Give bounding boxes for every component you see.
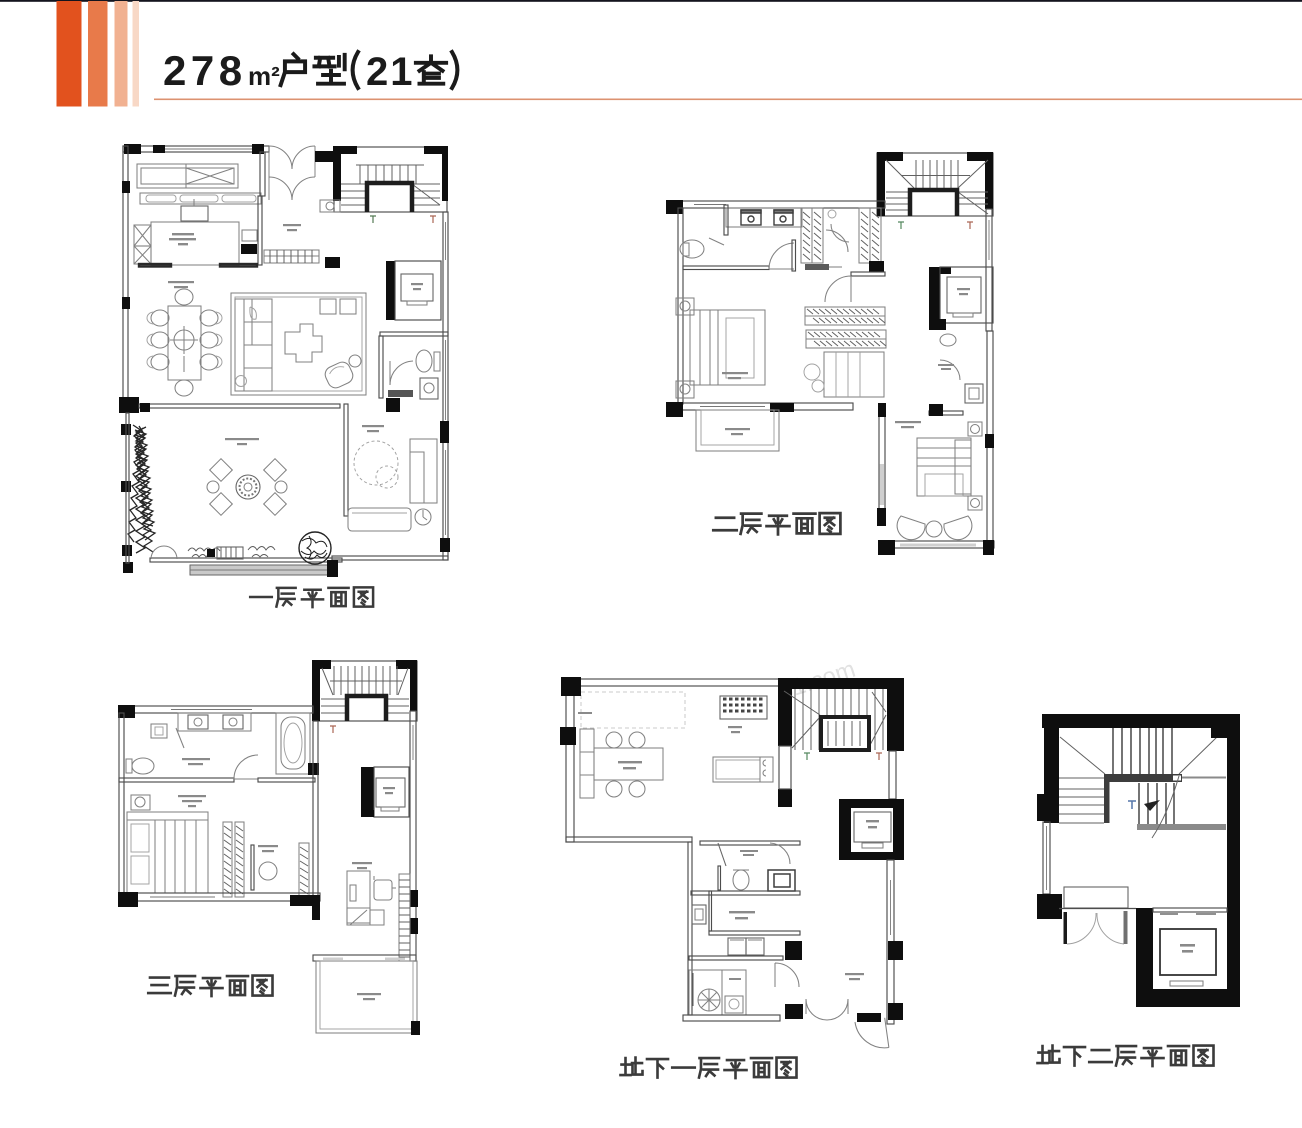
svg-text:21: 21 xyxy=(366,50,415,94)
svg-text:m²: m² xyxy=(248,61,280,91)
svg-text:278: 278 xyxy=(163,47,247,94)
